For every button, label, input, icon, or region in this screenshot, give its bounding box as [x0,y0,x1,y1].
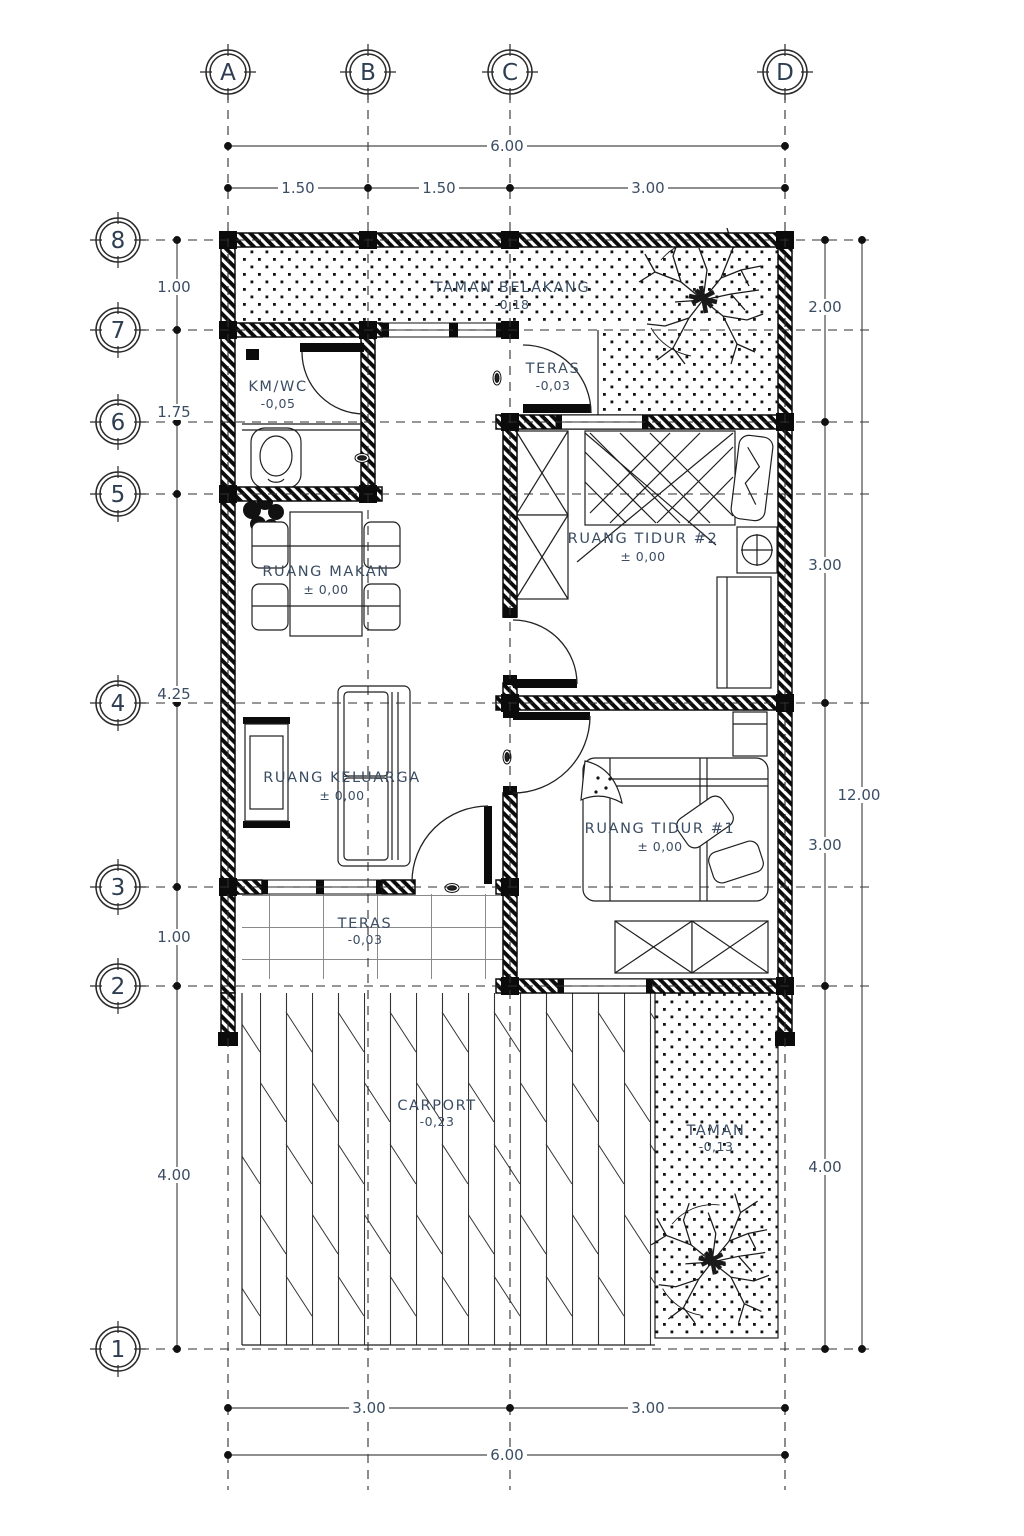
grid-label-2: 2 [111,974,126,1000]
dim-right-4: 4.00 [808,1158,841,1176]
dim-bottom-seg-1: 3.00 [352,1399,385,1417]
room-label-kmwc: KM/WC [248,379,307,395]
room-label-teras-atas: TERAS [525,361,581,377]
dim-top-total: 6.00 [490,137,523,155]
nightstand-1 [733,712,767,756]
toilet [246,349,301,488]
room-label-taman: TAMAN [686,1123,746,1139]
grid-label-8: 8 [111,228,126,254]
room-label-taman-belakang: TAMAN BELAKANG [433,280,591,296]
door-bed1 [513,712,590,793]
floor-plan-canvas: A B C D 8 7 6 5 4 3 2 1 6.00 1.50 1.50 3… [0,0,1024,1536]
door-front [412,806,492,884]
carport-floor [242,993,655,1345]
room-elev-ruang-keluarga: ± 0,00 [319,788,364,803]
dim-right-1: 2.00 [808,298,841,316]
grid-label-A: A [220,60,236,86]
dim-left-4: 1.00 [157,928,190,946]
desk-2 [717,577,771,688]
dim-right-total: 12.00 [838,786,881,804]
room-elev-ruang-makan: ± 0,00 [303,582,348,597]
dim-left-5: 4.00 [157,1166,190,1184]
room-label-ruang-makan: RUANG MAKAN [262,564,389,580]
dim-top-seg-2: 1.50 [422,179,455,197]
grid-label-5: 5 [111,482,126,508]
grid-label-C: C [502,60,518,86]
room-elev-teras-depan: -0,03 [348,932,383,947]
room-elev-taman-belakang: -0,18 [495,297,530,312]
room-label-teras-depan: TERAS [337,916,393,932]
dim-top-seg-3: 3.00 [631,179,664,197]
door-kmwc [300,343,364,414]
room-label-ruang-tidur-2: RUANG TIDUR #2 [568,531,719,547]
dim-bottom-total: 6.00 [490,1446,523,1464]
room-label-carport: CARPORT [397,1098,476,1114]
room-elev-ruang-tidur-1: ± 0,00 [637,839,682,854]
grid-label-4: 4 [111,691,126,717]
dim-left-2: 1.75 [157,403,190,421]
nightstand-2 [737,527,777,573]
grid-label-3: 3 [111,875,126,901]
door-bed2 [513,620,577,688]
grid-label-1: 1 [111,1337,126,1363]
grid-label-7: 7 [111,318,126,344]
grid-label-D: D [776,60,794,86]
dim-right-2: 3.00 [808,556,841,574]
room-label-ruang-tidur-1: RUANG TIDUR #1 [585,821,736,837]
grid-label-6: 6 [111,410,126,436]
dim-top-seg-1: 1.50 [281,179,314,197]
dim-left-1: 1.00 [157,278,190,296]
wardrobe-2 [516,431,568,599]
window-bed2 [556,415,648,429]
dim-left-3: 4.25 [157,685,190,703]
room-elev-carport: -0,23 [420,1114,455,1129]
dim-bottom-seg-2: 3.00 [631,1399,664,1417]
room-elev-teras-atas: -0,03 [536,378,571,393]
dim-right-3: 3.00 [808,836,841,854]
room-elev-taman: -0,13 [699,1139,734,1154]
room-label-ruang-keluarga: RUANG KELUARGA [263,770,421,786]
room-elev-kmwc: -0,05 [261,396,296,411]
wardrobe-1 [615,921,768,973]
grid-label-B: B [360,60,376,86]
floor-plan-page: A B C D 8 7 6 5 4 3 2 1 6.00 1.50 1.50 3… [0,0,1024,1536]
room-elev-ruang-tidur-2: ± 0,00 [620,549,665,564]
